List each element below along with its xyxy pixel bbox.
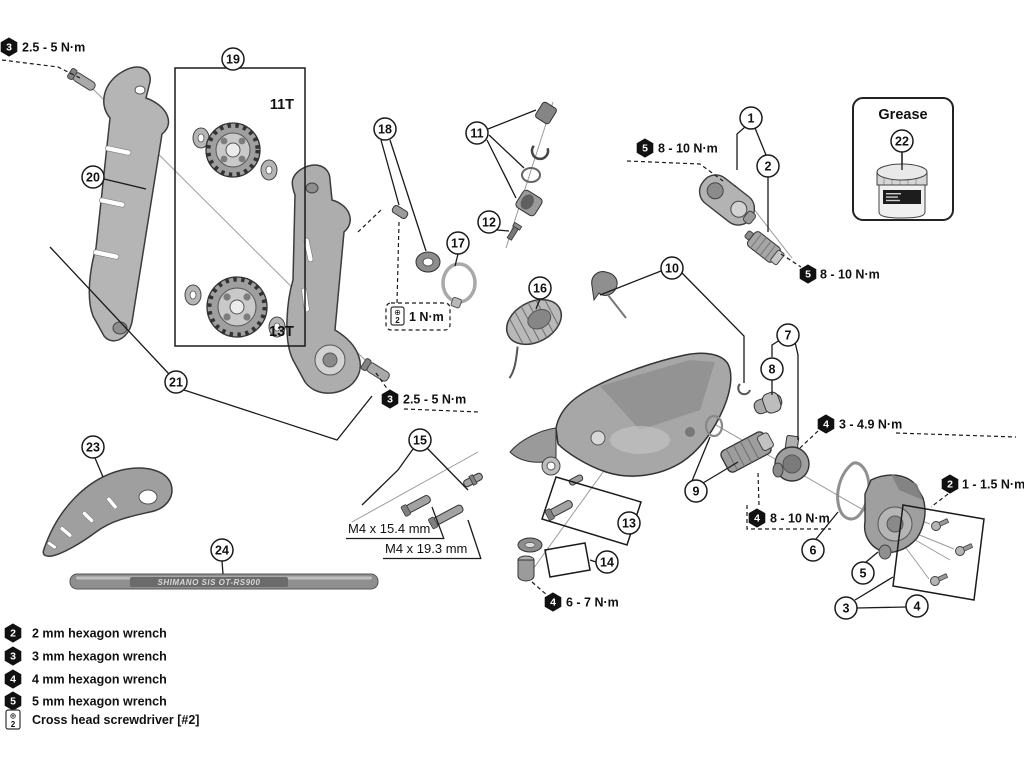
callout-2: 2 [757,155,779,177]
svg-text:4: 4 [823,419,829,431]
svg-text:2.5 - 5 N·m: 2.5 - 5 N·m [403,393,466,407]
bolt-length-short-label: M4 x 15.4 mm [346,521,444,539]
adjust-screw [506,222,522,241]
callout-14: 14 [596,551,618,573]
cable-hook [592,272,626,318]
svg-text:5: 5 [805,269,811,281]
callout-10: 10 [661,257,683,279]
torque-badge-b-link-lower: 5 8 - 10 N·m [800,265,880,283]
outer-casing: SHIMANO SIS OT-RS900 [70,574,378,589]
hex-wrench-icon: 3 [1,38,17,56]
torque-badge-cage-bolt-lower: 3 2.5 - 5 N·m [382,390,466,408]
hex-wrench-icon: 5 [5,692,21,710]
cage-bolt-lower [360,358,391,384]
svg-text:8 - 10 N·m: 8 - 10 N·m [770,512,830,526]
callout-3: 3 [835,597,857,619]
svg-text:2: 2 [10,628,16,640]
svg-text:M4 x 19.3 mm: M4 x 19.3 mm [385,541,467,556]
svg-text:8: 8 [769,362,776,376]
b-link [694,169,763,233]
torque-badge-clutch-unit: 4 8 - 10 N·m [749,509,830,527]
svg-text:2.5 - 5 N·m: 2.5 - 5 N·m [22,41,85,55]
svg-text:10: 10 [665,261,679,275]
svg-text:2: 2 [765,159,772,173]
torque-badge-bracket-axle: 4 3 - 4.9 N·m [818,415,902,433]
tool-legend: 2 2 mm hexagon wrench 3 3 mm hexagon wre… [5,624,199,729]
callout-18: 18 [374,118,396,140]
torque-badge-stopper-screw: ⊕ 2 1 N·m [391,307,444,325]
grease-panel: Grease [853,98,953,220]
adjuster-parts-column [514,101,557,217]
pulley-upper-teeth-label: 11T [270,97,294,113]
svg-text:4: 4 [754,513,760,525]
hex-wrench-icon: 2 [5,624,21,642]
svg-text:5: 5 [860,566,867,580]
callout-15: 15 [409,429,431,451]
svg-text:14: 14 [600,555,614,569]
svg-text:9: 9 [693,484,700,498]
svg-text:23: 23 [86,440,100,454]
cage-stopper-bolt-set [544,474,583,521]
hex-wrench-icon: 4 [545,593,561,611]
svg-text:4: 4 [10,674,16,686]
callout-22: 22 [891,130,913,152]
hex-wrench-icon: 2 [942,475,958,493]
grease-label: Grease [878,107,927,123]
cage-nut-box [545,543,590,577]
svg-text:12: 12 [482,215,496,229]
outer-cage-plate [287,165,360,393]
cable-marking: SHIMANO SIS OT-RS900 [158,578,261,587]
cross-head-screwdriver-icon: ⊕ 2 [6,710,20,729]
seal-ring [443,264,475,308]
callout-17: 17 [447,232,469,254]
svg-text:16: 16 [533,281,547,295]
legend-row-screwdriver: ⊕ 2 Cross head screwdriver [#2] [6,710,199,729]
torque-badge-cover-screws: 2 1 - 1.5 N·m [942,475,1024,493]
pulley-11t [193,123,277,180]
svg-text:5: 5 [642,143,648,155]
svg-text:2: 2 [947,479,953,491]
svg-text:3: 3 [387,394,393,406]
callout-5: 5 [852,562,874,584]
svg-text:22: 22 [895,134,909,148]
svg-text:6: 6 [810,543,817,557]
exploded-parts-diagram: Grease SHIMANO SIS OT-RS900 [0,0,1024,768]
svg-text:5: 5 [10,696,16,708]
legend-row-2mm: 2 2 mm hexagon wrench [5,624,167,642]
svg-text:Cross head screwdriver [#2]: Cross head screwdriver [#2] [32,713,199,727]
plate-washer [416,252,440,272]
svg-text:1: 1 [748,111,755,125]
diagram-canvas: Grease SHIMANO SIS OT-RS900 [0,0,1024,768]
pulley-lower-teeth-label: 13T [269,324,294,340]
bracket-axle-bolt [741,226,786,267]
svg-text:17: 17 [451,236,465,250]
legend-row-5mm: 5 5 mm hexagon wrench [5,692,167,710]
torque-badge-b-link-upper: 5 8 - 10 N·m [637,139,718,157]
svg-text:3: 3 [6,42,12,54]
callout-8: 8 [761,358,783,380]
svg-text:11: 11 [470,126,483,140]
callout-7: 7 [777,324,799,346]
hex-wrench-icon: 5 [800,265,816,283]
svg-text:4 mm hexagon wrench: 4 mm hexagon wrench [32,673,167,687]
svg-text:13: 13 [622,516,636,530]
clutch-cylinder [719,428,776,474]
svg-text:4: 4 [914,599,921,613]
svg-text:6 - 7 N·m: 6 - 7 N·m [566,596,619,610]
callout-16: 16 [529,277,551,299]
svg-text:20: 20 [86,170,100,184]
svg-text:19: 19 [226,52,240,66]
svg-text:2: 2 [395,316,400,325]
hex-wrench-icon: 3 [382,390,398,408]
plate-stopper-pin [391,204,409,219]
callout-9: 9 [685,480,707,502]
legend-row-3mm: 3 3 mm hexagon wrench [5,647,167,665]
svg-text:3: 3 [10,651,16,663]
svg-text:18: 18 [378,122,392,136]
callout-21: 21 [165,371,187,393]
callout-6: 6 [802,539,824,561]
svg-text:2 mm hexagon wrench: 2 mm hexagon wrench [32,627,167,641]
legend-row-4mm: 4 4 mm hexagon wrench [5,670,167,688]
link-bushing [751,390,784,418]
svg-text:15: 15 [413,433,427,447]
body-clip [738,384,750,394]
grease-jar [877,164,927,218]
svg-text:4: 4 [550,597,556,609]
hex-wrench-icon: 4 [749,509,765,527]
callout-12: 12 [478,211,500,233]
svg-text:8 - 10 N·m: 8 - 10 N·m [820,268,880,282]
cross-head-screwdriver-icon: ⊕ 2 [391,307,404,325]
callout-1: 1 [740,107,762,129]
bracket-unit [773,435,809,481]
svg-text:3 mm hexagon wrench: 3 mm hexagon wrench [32,650,167,664]
svg-text:7: 7 [785,328,792,342]
svg-text:5 mm hexagon wrench: 5 mm hexagon wrench [32,695,167,709]
torque-badge-cage-stud-nut: 4 6 - 7 N·m [545,593,619,611]
callout-13: 13 [618,512,640,534]
svg-text:24: 24 [215,543,229,557]
hex-wrench-icon: 3 [5,647,21,665]
bolt-length-long-label: M4 x 19.3 mm [383,541,481,559]
svg-text:3: 3 [843,601,850,615]
hex-wrench-icon: 4 [5,670,21,688]
callout-24: 24 [211,539,233,561]
inner-cage-plate [89,67,168,341]
svg-text:8 - 10 N·m: 8 - 10 N·m [658,142,718,156]
cage-bolt-upper [67,68,97,93]
svg-text:1 N·m: 1 N·m [409,310,444,324]
callout-20: 20 [82,166,104,188]
svg-text:M4 x 15.4 mm: M4 x 15.4 mm [348,521,430,536]
callout-4: 4 [906,595,928,617]
cage-nut-set [518,538,542,581]
cover-gasket [838,463,869,519]
hex-wrench-icon: 5 [637,139,653,157]
svg-text:1 - 1.5 N·m: 1 - 1.5 N·m [962,478,1024,492]
tension-spring [482,291,577,378]
svg-text:21: 21 [169,375,183,389]
callout-19: 19 [222,48,244,70]
hex-wrench-icon: 4 [818,415,834,433]
clutch-cover-unit [865,474,925,559]
callout-11: 11 [466,122,488,144]
torque-badge-cage-bolt-upper: 3 2.5 - 5 N·m [1,38,85,56]
svg-text:3 - 4.9 N·m: 3 - 4.9 N·m [839,418,902,432]
guard-bracket [43,468,172,556]
svg-text:2: 2 [11,720,16,729]
derailleur-body [510,353,731,476]
callout-23: 23 [82,436,104,458]
